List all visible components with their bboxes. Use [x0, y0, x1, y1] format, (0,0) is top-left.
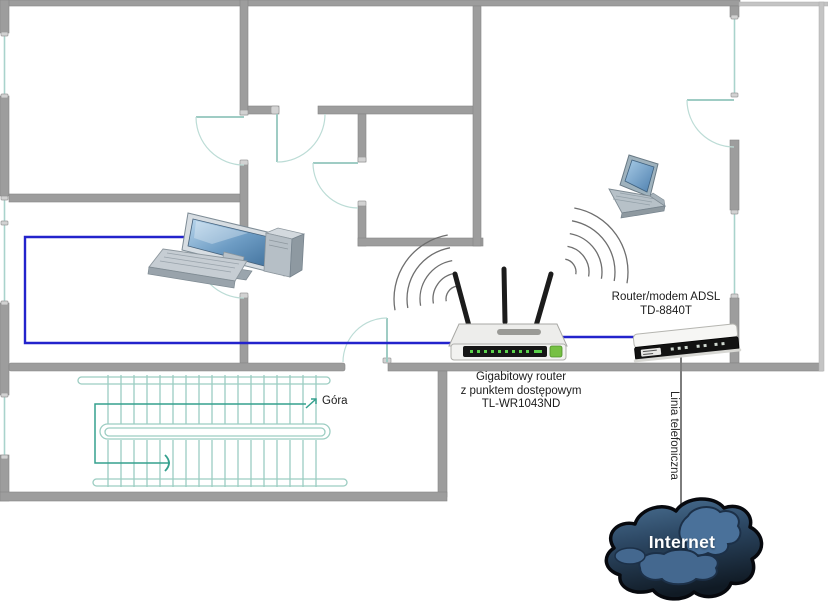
balcony-walls	[739, 2, 828, 371]
desktop-computer-icon	[148, 213, 304, 288]
adsl-modem-icon	[631, 323, 741, 362]
stairs-up-arrow	[306, 399, 316, 408]
modem-label-line1: Router/modem ADSL	[603, 291, 729, 305]
router-label-line1: Gigabitowy router	[448, 371, 594, 385]
wifi-waves-icon	[394, 208, 628, 310]
wifi-waves-right	[565, 208, 628, 283]
wireless-router-icon	[449, 269, 567, 360]
router-label-line3: TL-WR1043ND	[448, 398, 594, 412]
modem-label-line2: TD-8840T	[603, 305, 729, 319]
stairs-icon	[78, 375, 347, 487]
internet-cloud-label: Internet	[630, 536, 734, 550]
stairs-walk-line	[95, 399, 316, 471]
floor-plan-network-diagram: Gigabitowy router z punktem dostępowym T…	[0, 0, 828, 603]
walls	[0, 0, 823, 501]
laptop-icon	[609, 155, 665, 218]
router-label-line2: z punktem dostępowym	[448, 385, 594, 399]
phone-line-label: Linia telefoniczna	[667, 391, 681, 487]
wireless-router-label: Gigabitowy router z punktem dostępowym T…	[448, 371, 594, 412]
adsl-modem-label: Router/modem ADSL TD-8840T	[603, 291, 729, 318]
stairs-direction-label: Góra	[322, 395, 362, 409]
